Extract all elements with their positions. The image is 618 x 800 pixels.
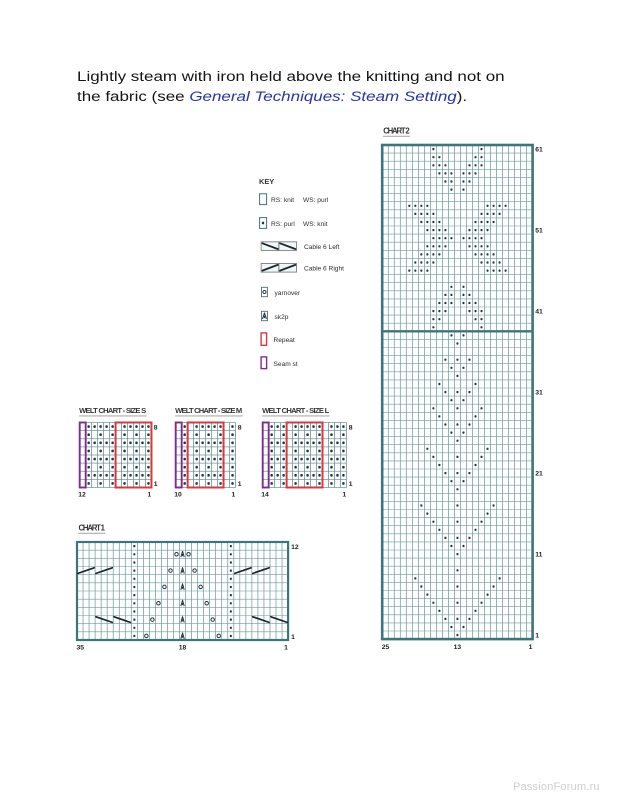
- svg-text:RS: purl: RS: purl: [271, 221, 295, 228]
- svg-text:1: 1: [535, 633, 539, 640]
- svg-text:WS: knit: WS: knit: [303, 221, 328, 228]
- svg-text:CHART 2: CHART 2: [383, 127, 410, 136]
- svg-text:1: 1: [154, 481, 158, 488]
- svg-text:8: 8: [154, 425, 158, 432]
- svg-text:31: 31: [535, 390, 543, 397]
- svg-text:Repeat: Repeat: [274, 337, 295, 344]
- svg-text:11: 11: [535, 552, 542, 559]
- svg-text:CHART 1: CHART 1: [79, 524, 106, 533]
- svg-text:WELT CHART - SIZE L: WELT CHART - SIZE L: [262, 406, 329, 415]
- svg-text:18: 18: [179, 645, 187, 652]
- svg-text:8: 8: [238, 425, 242, 432]
- svg-text:14: 14: [261, 491, 269, 498]
- svg-text:41: 41: [535, 309, 543, 316]
- svg-text:12: 12: [78, 491, 86, 498]
- svg-text:51: 51: [535, 228, 543, 235]
- svg-text:1: 1: [284, 645, 288, 652]
- svg-text:1: 1: [291, 634, 295, 641]
- svg-text:yarnover: yarnover: [275, 290, 301, 297]
- svg-text:1: 1: [147, 491, 151, 498]
- svg-text:WS: purl: WS: purl: [303, 197, 329, 204]
- svg-text:13: 13: [454, 644, 462, 651]
- svg-text:21: 21: [535, 471, 543, 478]
- svg-text:sk2p: sk2p: [275, 314, 289, 321]
- svg-text:61: 61: [535, 147, 543, 154]
- svg-text:1: 1: [529, 644, 533, 651]
- svg-text:WELT CHART - SIZE M: WELT CHART - SIZE M: [175, 406, 242, 415]
- svg-text:1: 1: [349, 481, 353, 488]
- svg-text:35: 35: [77, 645, 85, 652]
- svg-text:KEY: KEY: [259, 177, 274, 186]
- svg-text:1: 1: [231, 491, 235, 498]
- svg-text:25: 25: [382, 644, 390, 651]
- svg-text:Cable 6 Right: Cable 6 Right: [304, 266, 344, 273]
- svg-text:8: 8: [349, 425, 353, 432]
- svg-text:Cable 6 Left: Cable 6 Left: [304, 244, 340, 251]
- svg-text:RS: knit: RS: knit: [271, 197, 294, 204]
- svg-text:1: 1: [238, 481, 242, 488]
- svg-text:12: 12: [291, 544, 299, 551]
- svg-text:WELT CHART - SIZE S: WELT CHART - SIZE S: [79, 406, 146, 415]
- svg-text:Seam st: Seam st: [274, 361, 298, 368]
- svg-text:1: 1: [342, 491, 346, 498]
- svg-text:10: 10: [174, 491, 182, 498]
